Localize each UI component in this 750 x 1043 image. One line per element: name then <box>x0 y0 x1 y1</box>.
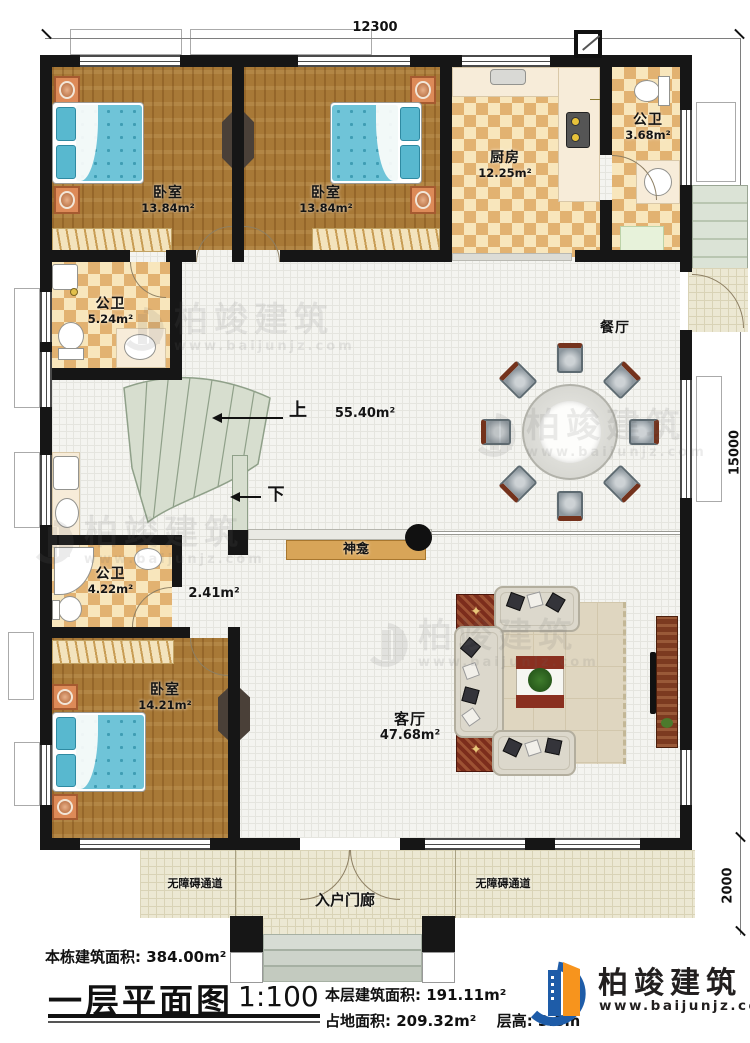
wall <box>166 250 196 262</box>
light-fixture <box>70 288 78 296</box>
window-icon <box>555 838 640 850</box>
nightstand <box>54 186 80 214</box>
dimension-right-value: 15000 <box>728 423 743 483</box>
window-icon <box>40 352 52 407</box>
building-area-value: 384.00m² <box>146 948 226 966</box>
floor-area-label: 本层建筑面积: <box>325 986 421 1004</box>
wall <box>40 368 182 380</box>
wall <box>410 55 462 67</box>
kitchen-sink <box>490 69 526 85</box>
wall <box>440 55 452 262</box>
room-label-dining: 餐厅 <box>585 320 645 337</box>
plant-small <box>661 718 673 728</box>
sofa-pillow <box>545 738 563 756</box>
porch-label: 入户门廊 <box>290 891 400 909</box>
room-name: 卧室 <box>118 185 218 202</box>
window-sill <box>14 288 40 408</box>
wall <box>170 262 182 368</box>
pillow <box>400 107 420 141</box>
room-label-bedroom3: 卧室 14.21m² <box>115 682 215 713</box>
tv <box>650 652 656 714</box>
window-icon <box>40 745 52 805</box>
window-icon <box>40 292 52 342</box>
stove-burner <box>571 117 580 126</box>
building-area-text: 本栋建筑面积: 384.00m² <box>45 946 226 967</box>
title-underline <box>48 1014 320 1018</box>
coffee-table-accent <box>516 695 564 708</box>
bath-mid-sink <box>124 334 156 360</box>
wall <box>232 250 244 262</box>
wardrobe <box>52 228 172 252</box>
ramp-divider <box>455 850 456 918</box>
room-name: 公卫 <box>68 296 153 313</box>
pillow <box>56 717 76 750</box>
room-label-bedroom2: 卧室 13.84m² <box>276 185 376 216</box>
room-name: 餐厅 <box>585 320 645 337</box>
toilet-bowl <box>634 80 660 102</box>
room-label-kitchen: 厨房 12.25m² <box>455 150 555 181</box>
pillow <box>56 145 76 179</box>
brand-url: www.baijunjz.com <box>599 998 750 1014</box>
corridor-area-label: 2.41m² <box>178 586 250 602</box>
wardrobe <box>52 640 174 664</box>
room-area: 3.68m² <box>603 129 693 143</box>
wall <box>232 55 244 262</box>
wall <box>40 250 130 262</box>
hall-area-label: 55.40m² <box>325 406 405 422</box>
dining-chair <box>481 419 511 445</box>
building-area-label: 本栋建筑面积: <box>45 948 141 966</box>
shrine-label: 神龛 <box>286 542 426 558</box>
pillow <box>400 145 420 179</box>
window-sill <box>696 376 722 502</box>
window-icon <box>680 380 692 498</box>
floor-area-value: 191.11m² <box>426 986 506 1004</box>
porch-column <box>422 916 455 952</box>
room-name: 公卫 <box>68 566 153 583</box>
nightstand <box>52 684 78 710</box>
room-area: 13.84m² <box>118 202 218 216</box>
room-area: 13.84m² <box>276 202 376 216</box>
washing-machine <box>53 456 79 490</box>
down-arrow-line <box>239 496 261 498</box>
wall <box>228 530 248 555</box>
room-area: 55.40m² <box>325 406 405 422</box>
wall <box>172 535 182 587</box>
dining-table-top <box>539 401 601 463</box>
staircase <box>118 372 293 537</box>
tv-cabinet <box>656 616 678 748</box>
dimension-top-value: 12300 <box>335 20 415 35</box>
window-sill <box>8 632 34 700</box>
side-table <box>456 732 496 772</box>
nightstand <box>52 794 78 820</box>
wall <box>550 55 692 67</box>
window-sill <box>696 102 736 182</box>
wall <box>40 627 190 638</box>
room-name: 公卫 <box>603 112 693 129</box>
ramp-left-label: 无障碍通道 <box>150 877 240 890</box>
scale-text: 1:100 <box>238 980 319 1013</box>
window-sill <box>14 452 40 528</box>
room-area: 2.41m² <box>178 586 250 602</box>
porch-step <box>263 934 422 950</box>
room-name: 客厅 <box>360 710 460 728</box>
wall <box>40 342 52 352</box>
site-area-label: 占地面积: <box>325 1012 391 1030</box>
laundry-sink <box>55 498 79 528</box>
room-name: 厨房 <box>455 150 555 167</box>
window-sill <box>14 742 40 806</box>
stair-up-label: 上 <box>283 400 313 422</box>
site-area-value: 209.32m² <box>396 1012 476 1030</box>
porch-column-base <box>422 952 455 983</box>
dining-chair <box>557 491 583 521</box>
dimension-bottom-right-value: 2000 <box>721 856 736 916</box>
plant <box>528 668 552 692</box>
stair-down-label: 下 <box>263 485 289 505</box>
window-icon <box>40 455 52 525</box>
wall <box>228 627 240 838</box>
room-label-bath-top: 公卫 3.68m² <box>603 112 693 143</box>
room-label-bath-low: 公卫 4.22m² <box>68 566 153 597</box>
room-name: 卧室 <box>276 185 376 202</box>
room-label-living: 客厅 47.68m² <box>360 710 460 744</box>
partition-line <box>432 531 680 535</box>
sofa <box>454 626 504 738</box>
wall <box>680 55 692 110</box>
nightstand <box>410 76 436 104</box>
dining-chair <box>557 343 583 373</box>
window-icon <box>80 838 210 850</box>
room-label-bath-mid: 公卫 5.24m² <box>68 296 153 327</box>
brand-logo-icon <box>518 952 596 1034</box>
window-icon <box>425 838 525 850</box>
wall <box>525 838 555 850</box>
dimension-line-top <box>45 38 740 39</box>
porch-step <box>263 950 422 966</box>
pillow <box>56 754 76 787</box>
wall <box>40 407 52 455</box>
room-area: 4.22m² <box>68 583 153 597</box>
floor-area-text: 本层建筑面积: 191.11m² <box>325 984 506 1005</box>
brand-name: 柏竣建筑 <box>598 958 742 1002</box>
window-icon <box>80 55 180 67</box>
toilet-tank <box>52 600 60 620</box>
washing-machine <box>52 264 78 290</box>
porch-column <box>230 916 263 952</box>
toilet-bowl <box>58 596 82 622</box>
wall <box>280 250 452 262</box>
wall <box>640 838 692 850</box>
room-area: 12.25m² <box>455 167 555 181</box>
floor-plan-canvas: 卧室 13.84m² 卧室 13.84m² 厨房 12.25m² 公卫 3.68… <box>0 0 750 1043</box>
nightstand <box>54 76 80 104</box>
pillow <box>56 107 76 141</box>
wall <box>210 838 300 850</box>
room-area: 14.21m² <box>115 699 215 713</box>
window-icon <box>298 55 410 67</box>
wall <box>40 535 182 545</box>
room-area: 5.24m² <box>68 313 153 327</box>
up-arrow-line <box>221 417 283 419</box>
dining-chair <box>629 419 659 445</box>
window-sill <box>70 29 182 55</box>
wall <box>40 838 80 850</box>
room-name: 卧室 <box>115 682 215 699</box>
wall <box>575 250 692 262</box>
toilet-tank <box>58 348 84 360</box>
room-label-bedroom1: 卧室 13.84m² <box>118 185 218 216</box>
window-icon <box>680 750 692 805</box>
porch-column-base <box>230 952 263 983</box>
kitchen-threshold <box>452 253 572 261</box>
wall <box>680 330 692 380</box>
stove-burner <box>571 133 580 142</box>
room-area: 47.68m² <box>360 728 460 744</box>
wall <box>680 498 692 750</box>
title-underline-thin <box>48 1021 320 1023</box>
ramp-right-label: 无障碍通道 <box>458 877 548 890</box>
dimension-line-right <box>740 38 741 935</box>
toilet-tank <box>658 76 670 106</box>
window-icon <box>462 55 550 67</box>
wardrobe <box>312 228 440 252</box>
nightstand <box>410 186 436 214</box>
wall <box>400 838 425 850</box>
